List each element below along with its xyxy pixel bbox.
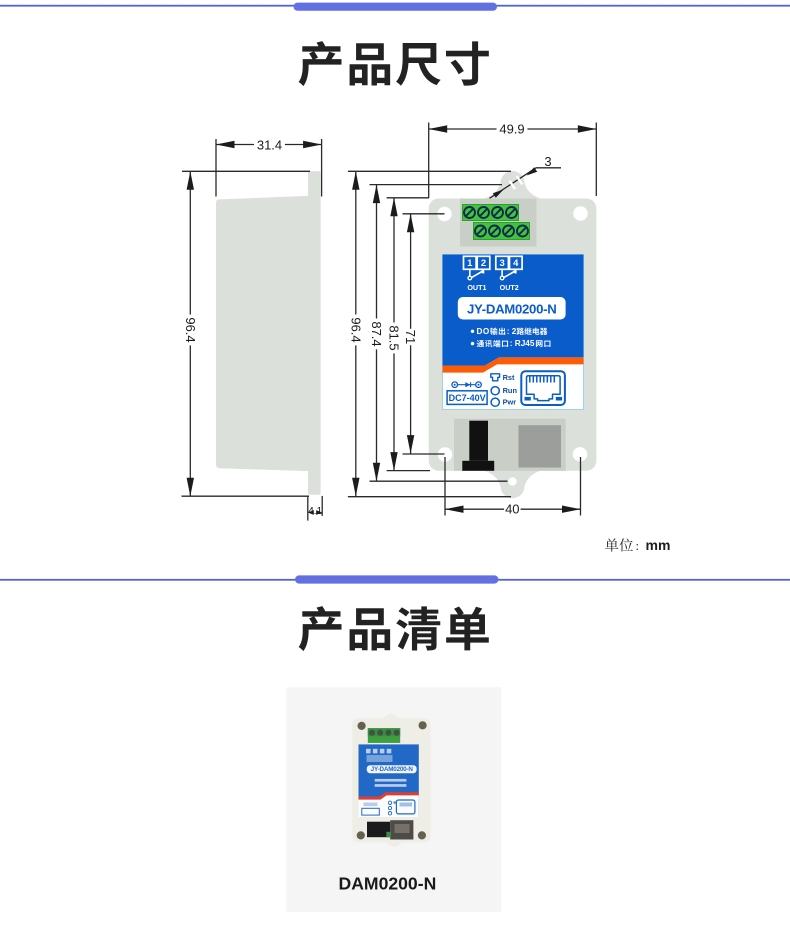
svg-text:31.4: 31.4 bbox=[257, 137, 282, 152]
svg-text:DO: DO bbox=[477, 327, 490, 336]
svg-text:JY-DAM0200-N: JY-DAM0200-N bbox=[467, 302, 556, 317]
svg-text:3: 3 bbox=[544, 154, 551, 169]
svg-text:1: 1 bbox=[467, 258, 473, 269]
svg-text:4: 4 bbox=[513, 258, 519, 269]
svg-text:71: 71 bbox=[403, 330, 418, 344]
svg-text:OUT2: OUT2 bbox=[500, 283, 519, 292]
svg-text:mm: mm bbox=[646, 537, 671, 553]
svg-text:Run: Run bbox=[503, 386, 518, 395]
svg-text:2: 2 bbox=[481, 258, 486, 269]
svg-text:: 2: : 2 bbox=[507, 327, 517, 336]
svg-text:49.9: 49.9 bbox=[499, 122, 524, 137]
svg-text:81.5: 81.5 bbox=[387, 325, 402, 350]
svg-text:Rst: Rst bbox=[503, 373, 515, 382]
svg-text:OUT1: OUT1 bbox=[467, 283, 486, 292]
svg-text:DC7-40V: DC7-40V bbox=[449, 393, 486, 403]
svg-text:40: 40 bbox=[505, 502, 519, 517]
svg-text:4.1: 4.1 bbox=[308, 506, 322, 517]
svg-text:96.4: 96.4 bbox=[348, 317, 363, 342]
svg-text:3: 3 bbox=[499, 258, 504, 269]
svg-text:: RJ45: : RJ45 bbox=[510, 339, 535, 348]
svg-text:DAM0200-N: DAM0200-N bbox=[339, 873, 437, 893]
svg-text:Pwr: Pwr bbox=[503, 398, 517, 407]
svg-text::: : bbox=[636, 538, 640, 553]
svg-text:87.4: 87.4 bbox=[369, 321, 384, 346]
svg-text:96.4: 96.4 bbox=[183, 317, 198, 342]
svg-text:JY-DAM0200-N: JY-DAM0200-N bbox=[371, 766, 414, 773]
